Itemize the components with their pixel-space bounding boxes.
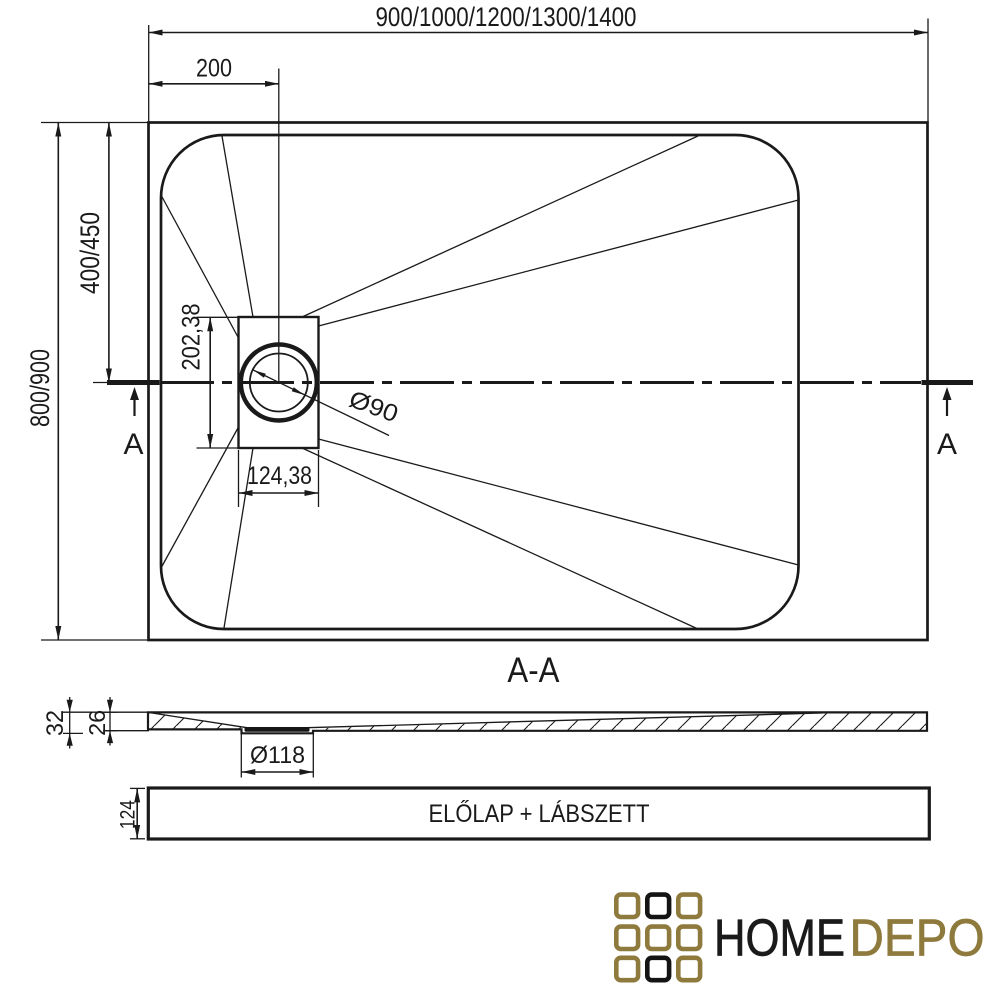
svg-text:A-A: A-A (507, 651, 560, 690)
svg-text:32: 32 (42, 710, 69, 736)
svg-text:202,38: 202,38 (178, 304, 206, 371)
svg-text:800/900: 800/900 (25, 349, 55, 427)
svg-text:200: 200 (196, 55, 232, 83)
svg-text:26: 26 (84, 710, 110, 736)
svg-text:Ø118: Ø118 (250, 742, 305, 769)
svg-text:A: A (937, 428, 957, 461)
svg-text:HOME: HOME (714, 909, 845, 967)
svg-text:400/450: 400/450 (75, 212, 105, 294)
svg-text:900/1000/1200/1300/1400: 900/1000/1200/1300/1400 (376, 2, 637, 32)
svg-text:124,38: 124,38 (247, 462, 312, 490)
svg-text:A: A (124, 428, 144, 461)
svg-text:DEPO: DEPO (850, 909, 985, 967)
svg-text:Ø90: Ø90 (345, 386, 401, 428)
svg-text:ELŐLAP + LÁBSZETT: ELŐLAP + LÁBSZETT (429, 799, 650, 828)
svg-text:124: 124 (116, 800, 139, 829)
